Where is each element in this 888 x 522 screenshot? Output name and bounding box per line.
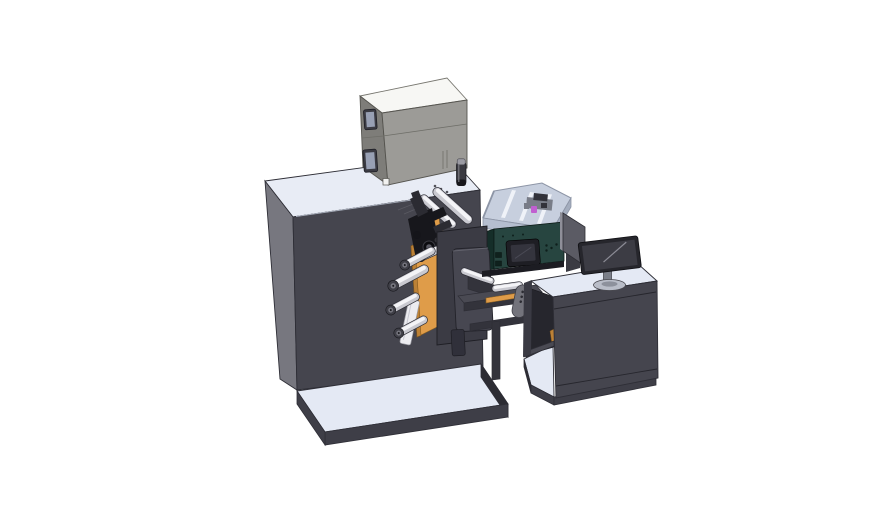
inspection-window-lower [363,149,378,172]
machine-render [0,0,888,522]
sensor-magenta [531,206,537,213]
control-pad[interactable] [496,253,502,258]
control-pad[interactable] [496,261,502,266]
desk-front-face [553,281,658,398]
inspection-window-upper [363,109,377,130]
plate-lower-bracket [451,329,465,356]
station-plate [437,226,495,356]
filter-canister [457,159,467,186]
desk-rear-leg [523,280,532,357]
hmi-screen[interactable] [506,239,541,267]
equipment-box [360,78,467,186]
box-corner-plate [383,179,389,186]
bridge-leg [492,321,500,380]
cad-viewport[interactable] [0,0,888,522]
